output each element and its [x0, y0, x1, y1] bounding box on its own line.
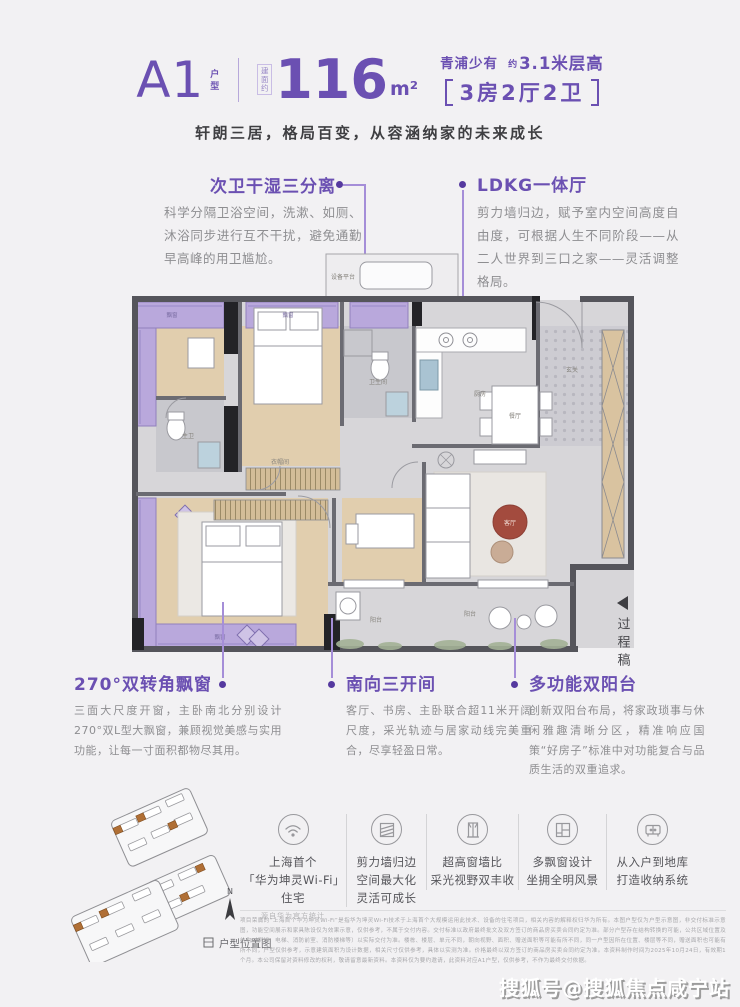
- left-triangle-icon: [617, 596, 628, 610]
- watermark: 搜狐号@搜狐焦点咸宁站: [499, 972, 730, 1001]
- compass-icon: N: [225, 887, 235, 920]
- storage-icon: [637, 814, 668, 845]
- svg-text:衣帽间: 衣帽间: [271, 458, 289, 466]
- layout-spec-text: 3房2厅2卫: [460, 77, 585, 107]
- plan-code-suffix: 户型: [207, 69, 220, 93]
- header: A1 户型 建面约 116 m² 青浦少有 约 3.1米层高 3房2厅2卫: [0, 52, 740, 143]
- svg-text:厨房: 厨房: [474, 390, 486, 398]
- feature-line: 灵活可成长: [350, 890, 423, 908]
- side-table: [491, 541, 513, 563]
- header-divider: [238, 58, 239, 102]
- feature-line: 「华为坤灵Wi-Fi」: [243, 872, 343, 890]
- callout-connector: [222, 602, 224, 678]
- feature-line: 超高窗墙比: [430, 854, 515, 872]
- draft-note-text: 过程稿: [613, 617, 632, 671]
- layout-spec: 3房2厅2卫: [440, 77, 604, 107]
- callout-dot: [459, 181, 466, 188]
- feature-line: 住宅: [243, 890, 343, 908]
- tagline-location: 青浦少有: [440, 52, 498, 72]
- disclaimer-divider: [240, 910, 726, 911]
- svg-text:阳台: 阳台: [370, 616, 382, 624]
- svg-text:客厅: 客厅: [504, 519, 516, 527]
- callout-connector: [343, 184, 365, 186]
- area-value: 116: [275, 55, 388, 105]
- feature-huawei-wifi: 上海首个 「华为坤灵Wi-Fi」 住宅 源自华为官方统计: [240, 814, 346, 921]
- svg-text:设备平台: 设备平台: [331, 273, 355, 281]
- callout-dot: [511, 681, 518, 688]
- feature-storage: 从入户到地库 打造收纳系统: [606, 814, 698, 890]
- header-right: 青浦少有 约 3.1米层高 3房2厅2卫: [440, 52, 604, 107]
- wifi-icon: [278, 814, 309, 845]
- equipment-platform: 设备平台: [326, 254, 458, 298]
- callout-balcony-desc: 创新双阳台布局，将家政琐事与休闲雅趣清晰分区，精准响应国策“好房子”标准中对功能…: [529, 701, 705, 780]
- subtitle: 轩朗三居，格局百变，从容涵纳家的未来成长: [0, 122, 740, 143]
- feature-line: 上海首个: [243, 854, 343, 872]
- svg-text:N: N: [227, 887, 233, 896]
- callout-baywindow-desc: 三面大尺度开窗，主卧南北分别设计270°双L型大飘窗，兼顾视觉美感与实用功能，让…: [74, 701, 282, 760]
- floor-plan: 设备平台: [128, 246, 642, 658]
- plan-code: A1 户型: [136, 55, 220, 105]
- callout-dot: [328, 681, 335, 688]
- svg-text:阳台: 阳台: [464, 610, 476, 618]
- feature-line: 采光视野双丰收: [430, 872, 515, 890]
- svg-text:玄关: 玄关: [566, 366, 578, 374]
- svg-text:飘窗: 飘窗: [282, 311, 294, 319]
- feature-row: 上海首个 「华为坤灵Wi-Fi」 住宅 源自华为官方统计 剪力墙归边 空间最大化…: [240, 814, 698, 921]
- svg-text:餐厅: 餐厅: [509, 412, 521, 420]
- svg-text:主卫: 主卫: [182, 432, 194, 440]
- feature-shear-wall: 剪力墙归边 空间最大化 灵活可成长: [346, 814, 426, 907]
- building-cluster: [110, 787, 209, 868]
- callout-south-desc: 客厅、书房、主卧联合超11米开阔尺度，采光轨迹与居家动线完美重合，尽享轻盈日常。: [346, 701, 532, 760]
- feature-line: 坐拥全明风景: [522, 872, 603, 890]
- area-prefix: 建面约: [257, 64, 272, 96]
- bracket-right: [591, 79, 599, 106]
- building-cluster: [70, 879, 180, 962]
- window-ratio-icon: [457, 814, 488, 845]
- callout-connector: [514, 618, 516, 678]
- bay-window-icon: [547, 814, 578, 845]
- tagline-height: 3.1米层高: [519, 56, 604, 73]
- tagline-approx: 约: [508, 57, 518, 70]
- area-block: 建面约 116 m²: [257, 55, 418, 105]
- svg-text:卫生间: 卫生间: [369, 378, 387, 386]
- shear-wall-icon: [371, 814, 402, 845]
- svg-text:飘窗: 飘窗: [214, 633, 226, 641]
- feature-line: 空间最大化: [350, 872, 423, 890]
- feature-line: 打造收纳系统: [610, 872, 695, 890]
- callout-balcony-title: 多功能双阳台: [529, 670, 637, 695]
- tagline: 青浦少有 约 3.1米层高: [440, 52, 604, 72]
- feature-bay-windows: 多飘窗设计 坐拥全明风景: [518, 814, 606, 890]
- callout-south-title: 南向三开间: [346, 670, 436, 695]
- bracket-left: [445, 79, 453, 106]
- callout-connector: [331, 618, 333, 678]
- plan-code-value: A1: [136, 55, 204, 105]
- foyer-cabinet: [602, 330, 624, 558]
- feature-line: 从入户到地库: [610, 854, 695, 872]
- feature-line: 剪力墙归边: [350, 854, 423, 872]
- floorplan-poster-page: A1 户型 建面约 116 m² 青浦少有 约 3.1米层高 3房2厅2卫: [0, 0, 740, 1007]
- callout-dot: [219, 681, 226, 688]
- draft-note: 过程稿: [612, 596, 632, 671]
- callout-baywindow-title: 270°双转角飘窗: [62, 670, 212, 695]
- feature-window-ratio: 超高窗墙比 采光视野双丰收: [426, 814, 518, 890]
- svg-text:飘窗: 飘窗: [166, 311, 178, 319]
- callout-subbath-title: 次卫干湿三分离: [140, 172, 336, 197]
- area-unit: m²: [390, 78, 418, 100]
- callout-dot: [336, 181, 343, 188]
- disclaimer-text: 项目荣膺的“上海首个华为坤灵Wi-Fi”是指华为坤灵Wi-Fi技术于上海首个大规…: [240, 917, 726, 966]
- callout-ldkg-title: LDKG一体厅: [477, 171, 587, 196]
- feature-line: 多飘窗设计: [522, 854, 603, 872]
